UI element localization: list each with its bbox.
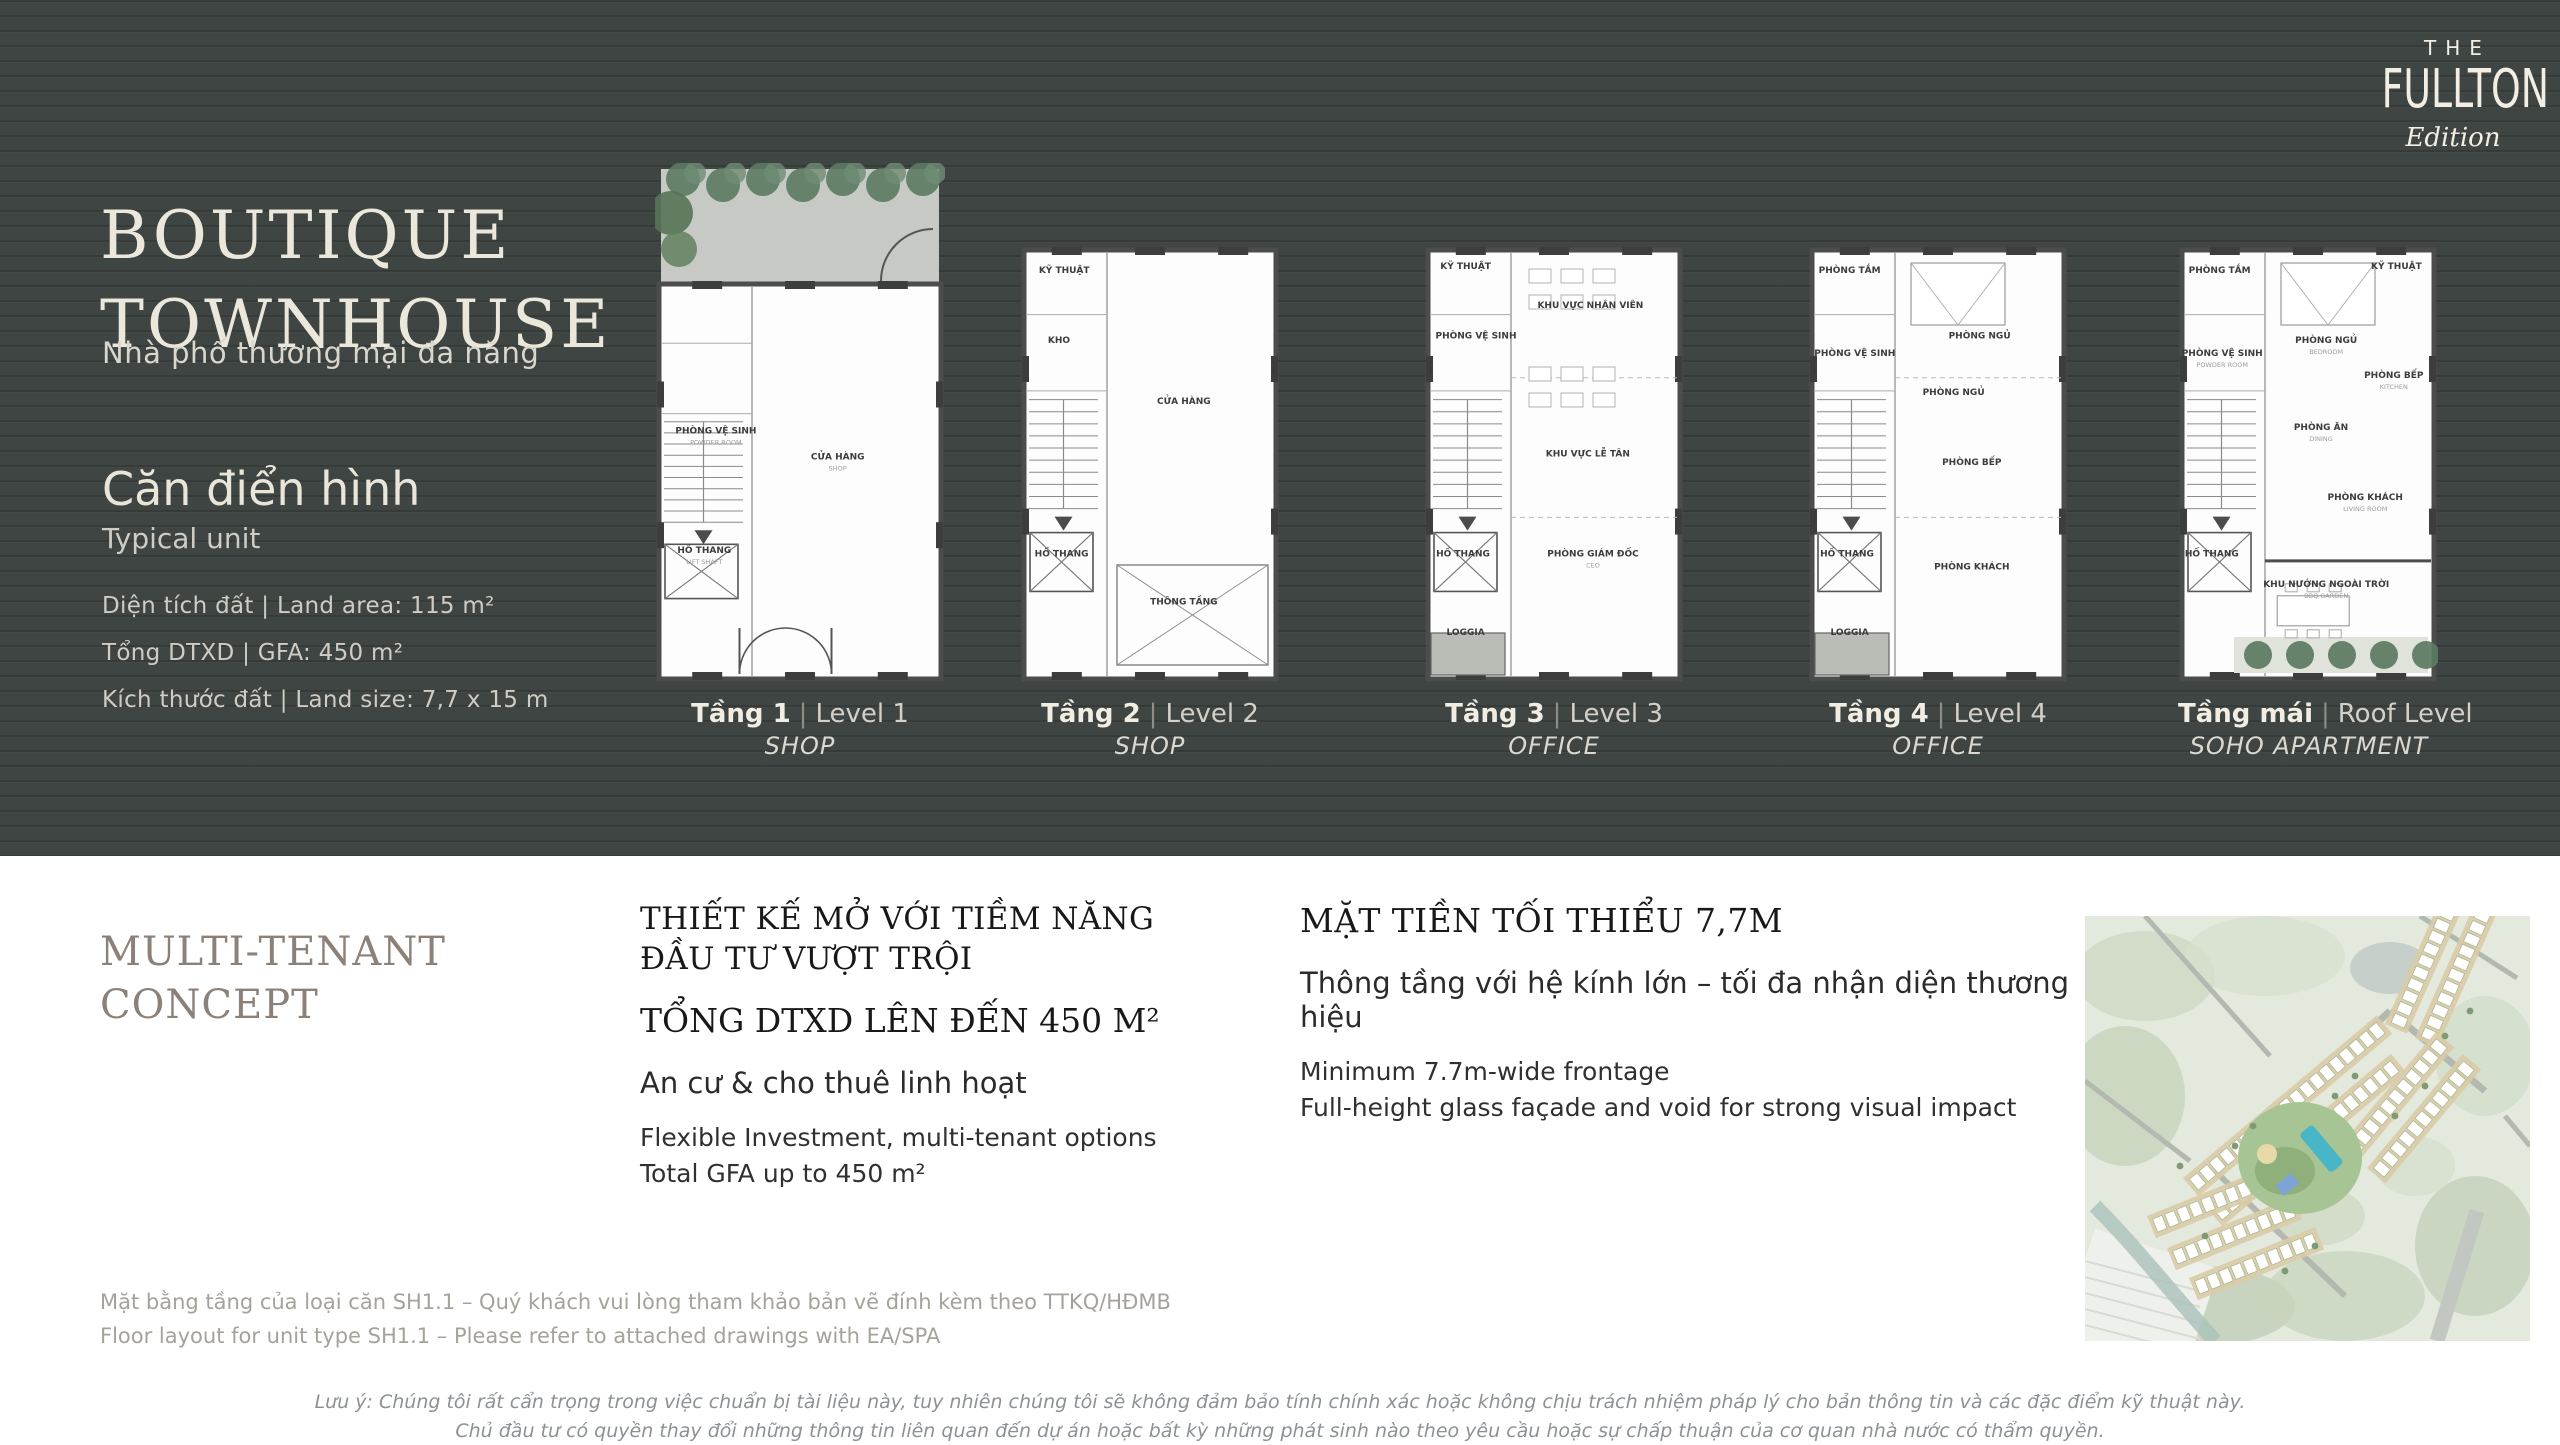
frontage-heading: MẶT TIỀN TỐI THIỂU 7,7M <box>1300 900 2100 942</box>
svg-text:KỸ THUẬT: KỸ THUẬT <box>2371 261 2423 272</box>
svg-text:KHO: KHO <box>1048 336 1071 346</box>
flexible-living-en: Flexible Investment, multi-tenant option… <box>640 1120 1260 1191</box>
svg-text:KHU NƯỚNG NGOÀI TRỜI: KHU NƯỚNG NGOÀI TRỜI <box>2263 578 2389 590</box>
svg-text:KỸ THUẬT: KỸ THUẬT <box>1440 261 1492 272</box>
plan-use: SHOP <box>1020 732 1280 760</box>
floor-plan-level-1: CỬA HÀNGSHOPPHÒNG VỆ SINHPOWDER ROOMHỐ T… <box>655 163 945 760</box>
footnote-line-vi: Mặt bằng tầng của loại căn SH1.1 – Quý k… <box>100 1286 1171 1320</box>
plan-use: SHOP <box>655 732 945 760</box>
concept-heading: MULTI-TENANT CONCEPT <box>100 926 446 1032</box>
floor-plan-level-3: KỸ THUẬTPHÒNG VỆ SINHKHU VỰC NHÂN VIÊNKH… <box>1424 247 1684 760</box>
plan-name-separator: | <box>1929 699 1954 729</box>
flexible-living-vi: An cư & cho thuê linh hoạt <box>640 1066 1260 1100</box>
footnote: Mặt bằng tầng của loại căn SH1.1 – Quý k… <box>100 1286 1171 1353</box>
floor-plan-drawing-level-1: CỬA HÀNGSHOPPHÒNG VỆ SINHPOWDER ROOMHỐ T… <box>655 163 945 683</box>
svg-text:LIFT SHAFT: LIFT SHAFT <box>686 558 722 566</box>
floor-plan-caption-level-2: Tầng 2|Level 2 SHOP <box>1020 699 1280 760</box>
svg-text:PHÒNG VỆ SINH: PHÒNG VỆ SINH <box>2182 347 2263 359</box>
frontage-en-line2: Full-height glass façade and void for st… <box>1300 1090 2100 1126</box>
floor-plan-caption-level-4: Tầng 4|Level 4 OFFICE <box>1808 699 2068 760</box>
gfa-heading: TỔNG DTXD LÊN ĐẾN 450 M² <box>640 1001 1260 1040</box>
spec-land-area: Diện tích đất | Land area: 115 m² <box>102 583 549 630</box>
floor-plan-drawing-level-2: KỸ THUẬTKHOCỬA HÀNGHỐ THANGTHÔNG TẦNG <box>1020 247 1280 683</box>
svg-text:PHÒNG VỆ SINH: PHÒNG VỆ SINH <box>1814 347 1895 359</box>
floor-plan-caption-level-3: Tầng 3|Level 3 OFFICE <box>1424 699 1684 760</box>
svg-text:DINING: DINING <box>2309 435 2333 443</box>
svg-text:LOGGIA: LOGGIA <box>1831 628 1869 638</box>
svg-text:PHÒNG ĂN: PHÒNG ĂN <box>2294 421 2348 433</box>
concept-heading-line1: MULTI-TENANT <box>100 926 446 979</box>
svg-text:CEO: CEO <box>1586 562 1600 570</box>
plan-name-separator: | <box>1545 699 1570 729</box>
floor-plan-roof-level: PHÒNG TẮMPHÒNG NGỦBEDROOMKỸ THUẬTPHÒNG V… <box>2178 247 2440 760</box>
svg-text:SHOP: SHOP <box>829 464 847 472</box>
plan-name-separator: | <box>791 699 816 729</box>
disclaimer: Lưu ý: Chúng tôi rất cẩn trọng trong việ… <box>0 1388 2560 1445</box>
concept-col-left: THIẾT KẾ MỞ VỚI TIỀM NĂNG ĐẦU TƯ VƯỢT TR… <box>640 900 1260 1191</box>
plan-name-en: Level 1 <box>815 699 908 729</box>
page-title-line1: BOUTIQUE <box>100 192 611 280</box>
spec-land-size: Kích thước đất | Land size: 7,7 x 15 m <box>102 677 549 724</box>
svg-text:KHU VỰC NHÂN VIÊN: KHU VỰC NHÂN VIÊN <box>1537 299 1643 311</box>
disclaimer-line1: Lưu ý: Chúng tôi rất cẩn trọng trong việ… <box>0 1388 2560 1417</box>
floor-plan-drawing-roof-level: PHÒNG TẮMPHÒNG NGỦBEDROOMKỸ THUẬTPHÒNG V… <box>2178 247 2438 683</box>
svg-text:PHÒNG VỆ SINH: PHÒNG VỆ SINH <box>675 424 756 436</box>
concept-col-right: MẶT TIỀN TỐI THIỂU 7,7M Thông tầng với h… <box>1300 900 2100 1125</box>
brand-logo: THE FULLTON Edition <box>2368 36 2538 153</box>
unit-info: Căn điển hình Typical unit Diện tích đất… <box>102 462 549 724</box>
plan-name-vi: Tầng 3 <box>1445 699 1545 729</box>
brand-logo-edition: Edition <box>2368 123 2538 153</box>
svg-text:PHÒNG KHÁCH: PHÒNG KHÁCH <box>1934 561 2009 573</box>
disclaimer-line2: Chủ đầu tư có quyền thay đổi những thông… <box>0 1417 2560 1445</box>
svg-text:PHÒNG VỆ SINH: PHÒNG VỆ SINH <box>1436 330 1517 342</box>
spec-gfa: Tổng DTXD | GFA: 450 m² <box>102 630 549 677</box>
plan-use: SOHO APARTMENT <box>2178 732 2440 760</box>
plan-name-separator: | <box>2313 699 2338 729</box>
design-heading-line1: THIẾT KẾ MỞ VỚI TIỀM NĂNG <box>640 900 1260 940</box>
plan-name-separator: | <box>1141 699 1166 729</box>
flexible-living-en-line1: Flexible Investment, multi-tenant option… <box>640 1120 1260 1156</box>
concept-heading-line2: CONCEPT <box>100 979 446 1032</box>
svg-text:LOGGIA: LOGGIA <box>1447 628 1485 638</box>
svg-text:LIVING ROOM: LIVING ROOM <box>2343 505 2387 513</box>
frontage-en: Minimum 7.7m-wide frontage Full-height g… <box>1300 1054 2100 1125</box>
unit-subtitle: Typical unit <box>102 522 549 555</box>
svg-text:KỸ THUẬT: KỸ THUẬT <box>1039 265 1091 276</box>
plan-name-vi: Tầng 2 <box>1041 699 1141 729</box>
plan-name-vi: Tầng 4 <box>1829 699 1929 729</box>
floor-plan-caption-level-1: Tầng 1|Level 1 SHOP <box>655 699 945 760</box>
plan-name-en: Level 3 <box>1569 699 1662 729</box>
page-subtitle: Nhà phố thương mại đa năng <box>102 336 539 370</box>
svg-text:KITCHEN: KITCHEN <box>2380 383 2408 391</box>
plan-name-en: Level 4 <box>1953 699 2046 729</box>
footnote-line-en: Floor layout for unit type SH1.1 – Pleas… <box>100 1320 1171 1354</box>
flexible-living-en-line2: Total GFA up to 450 m² <box>640 1156 1260 1192</box>
floor-plan-level-4: PHÒNG TẮMPHÒNG NGỦPHÒNG VỆ SINHPHÒNG NGỦ… <box>1808 247 2068 760</box>
floor-plan-caption-roof-level: Tầng mái|Roof Level SOHO APARTMENT <box>2178 699 2440 760</box>
plan-name-vi: Tầng mái <box>2178 699 2313 729</box>
frontage-vi: Thông tầng với hệ kính lớn – tối đa nhận… <box>1300 966 2100 1034</box>
plan-name-en: Roof Level <box>2338 699 2473 729</box>
unit-title: Căn điển hình <box>102 462 549 516</box>
brand-logo-name: FULLTON <box>2382 57 2525 120</box>
plan-name-en: Level 2 <box>1165 699 1258 729</box>
concept-section: MULTI-TENANT CONCEPT THIẾT KẾ MỞ VỚI TIỀ… <box>0 856 2560 1440</box>
unit-specs: Diện tích đất | Land area: 115 m² Tổng D… <box>102 583 549 724</box>
svg-text:BBQ GARDEN: BBQ GARDEN <box>2304 592 2348 600</box>
design-heading-line2: ĐẦU TƯ VƯỢT TRỘI <box>640 940 1260 980</box>
svg-text:PHÒNG KHÁCH: PHÒNG KHÁCH <box>2327 491 2402 503</box>
plan-use: OFFICE <box>1424 732 1684 760</box>
frontage-en-line1: Minimum 7.7m-wide frontage <box>1300 1054 2100 1090</box>
site-map <box>2085 916 2530 1341</box>
hero-section: BOUTIQUE TOWNHOUSE Nhà phố thương mại đa… <box>0 0 2560 856</box>
plan-name-vi: Tầng 1 <box>691 699 791 729</box>
floor-plan-drawing-level-4: PHÒNG TẮMPHÒNG NGỦPHÒNG VỆ SINHPHÒNG NGỦ… <box>1808 247 2068 683</box>
svg-text:POWDER ROOM: POWDER ROOM <box>2196 361 2248 369</box>
plan-use: OFFICE <box>1808 732 2068 760</box>
design-heading: THIẾT KẾ MỞ VỚI TIỀM NĂNG ĐẦU TƯ VƯỢT TR… <box>640 900 1260 979</box>
svg-text:BEDROOM: BEDROOM <box>2309 348 2343 356</box>
floor-plan-drawing-level-3: KỸ THUẬTPHÒNG VỆ SINHKHU VỰC NHÂN VIÊNKH… <box>1424 247 1684 683</box>
svg-text:POWDER ROOM: POWDER ROOM <box>690 438 742 446</box>
floor-plan-level-2: KỸ THUẬTKHOCỬA HÀNGHỐ THANGTHÔNG TẦNG Tầ… <box>1020 247 1280 760</box>
